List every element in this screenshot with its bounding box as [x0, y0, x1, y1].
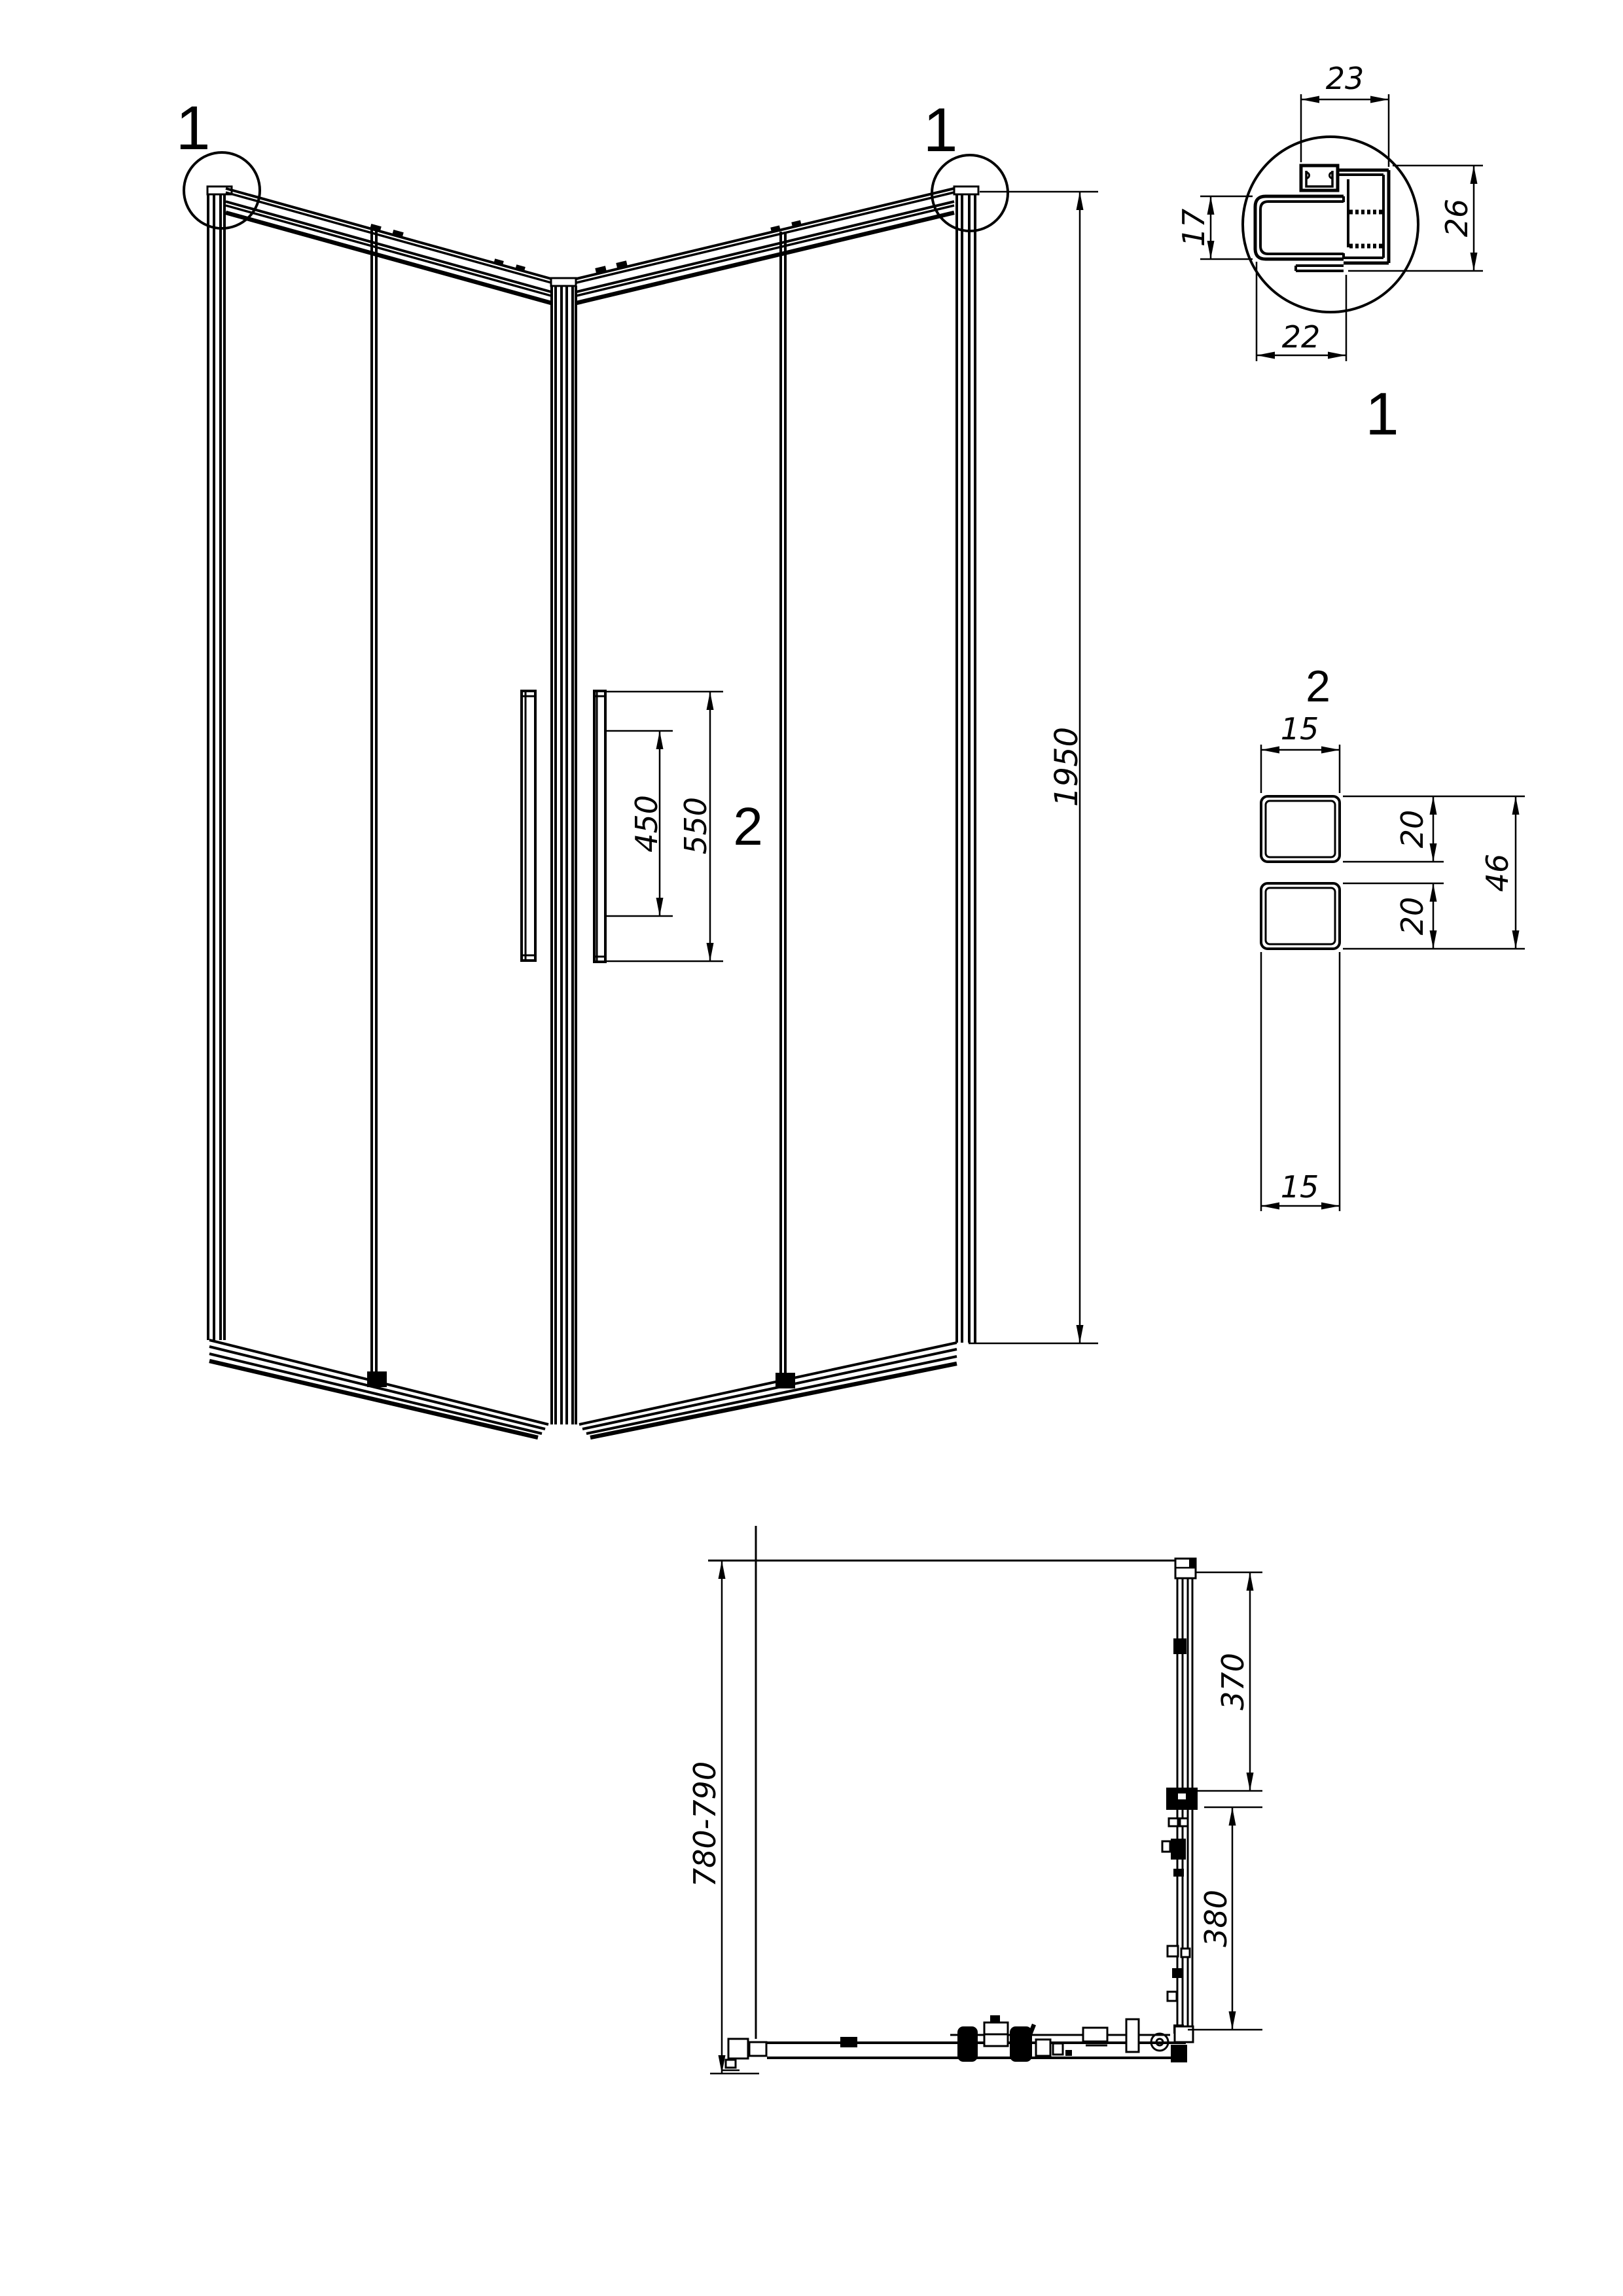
detail1-dimensions: 23 26 17 22: [1176, 61, 1483, 361]
detail2-dim-width-bottom-label: 15: [1281, 1169, 1319, 1205]
right-wall-profile: [954, 186, 978, 1343]
right-post-cap: [954, 186, 978, 194]
detail1-dim-right-label: 26: [1439, 199, 1474, 238]
plan-dim-fixed-label: 380: [1198, 1890, 1234, 1947]
left-wall-profile: [207, 186, 232, 1340]
detail1-dim-left-label: 17: [1176, 209, 1211, 247]
detail2-dimensions: 15 20 20 46 15: [1261, 711, 1525, 1211]
left-handle: [522, 691, 535, 961]
plan-corner-block: [1171, 2045, 1187, 2062]
top-rail-left: [226, 188, 551, 303]
left-door-edge: [367, 230, 387, 1387]
dim-handle-inner-label: 450: [629, 795, 664, 853]
height-dimension: 1950: [969, 192, 1098, 1343]
bottom-track-right: [579, 1343, 957, 1438]
detail1-boundary-circle: [1243, 137, 1418, 312]
plan-outline: [708, 1526, 1176, 2039]
detail-1-view: 23 26 17 22 1: [1176, 61, 1483, 448]
detail2-reference-label: 2: [733, 797, 763, 857]
dim-height-label: 1950: [1048, 727, 1085, 807]
plan-view: 780-790: [687, 1526, 1262, 2074]
detail-2-view: 2 15 20 20 46 15: [1261, 662, 1525, 1211]
detail2-title-label: 2: [1306, 662, 1330, 711]
clamp-serration: [1349, 212, 1382, 246]
corner-post: [551, 278, 576, 1424]
right-door-edge: [776, 232, 795, 1388]
detail1-marker-right-label: 1: [923, 96, 958, 165]
plan-bottom-wall: [722, 2015, 1193, 2070]
detail1-marker-left-label: 1: [176, 94, 211, 163]
plan-dim-door-label: 370: [1215, 1653, 1251, 1710]
detail2-dim-height-lower-label: 20: [1395, 897, 1430, 936]
wall-profile-section: [1255, 196, 1344, 259]
handle-dimensions: 450 550 2: [605, 692, 763, 961]
handle-section-lower: [1261, 883, 1340, 949]
top-rail-right: [577, 188, 954, 303]
dim-handle-outer-label: 550: [678, 797, 713, 855]
right-handle: [594, 691, 605, 962]
handle-section-upper: [1261, 796, 1340, 862]
detail1-title-label: 1: [1365, 381, 1399, 448]
plan-roller-left: [957, 2026, 978, 2062]
technical-drawing: 450 550 2 1950 1 1: [0, 0, 1623, 2296]
detail1-dim-top-label: 23: [1326, 61, 1364, 96]
front-view: 450 550 2 1950 1 1: [176, 94, 1098, 1438]
plan-dim-depth-label: 780-790: [687, 1761, 722, 1887]
detail2-dim-height-total-label: 46: [1480, 854, 1515, 892]
detail2-dim-width-top-label: 15: [1281, 711, 1319, 747]
corner-post-cap: [551, 278, 576, 286]
bottom-track-left: [209, 1340, 548, 1438]
detail1-reference-right: 1: [923, 96, 1008, 231]
detail2-dim-height-upper-label: 20: [1395, 810, 1430, 849]
plan-right-wall: [1162, 1559, 1198, 2034]
detail1-dim-bottom-label: 22: [1282, 319, 1321, 355]
plan-depth-dimension: 780-790: [687, 1561, 759, 2074]
plan-segment-dimensions: 370 380: [1188, 1572, 1262, 2030]
